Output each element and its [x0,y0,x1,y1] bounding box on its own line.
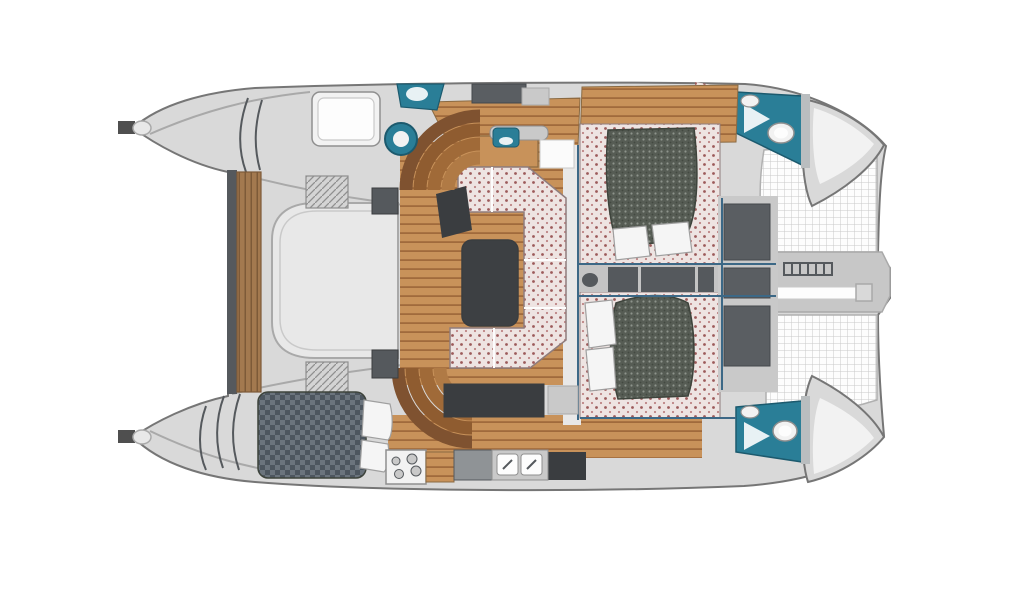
galley-counter-aft [444,384,544,417]
bed-aft-port-pillow-1 [362,400,392,440]
corridor-step-3 [698,267,714,292]
galley-counter-wood [426,452,454,482]
bed-starboard-pillow-2 [652,222,692,256]
berth-aft-starboard-inner [318,98,374,140]
sink-port [741,406,759,418]
bed-port-mattress [611,296,694,400]
galley-counter-fwd [548,452,586,480]
foredeck-hatch-1 [724,204,770,260]
cockpit-lounge [272,203,398,358]
cabin-forward-starboard [580,124,720,264]
corridor-step-2 [641,267,695,292]
corner-seat [436,186,472,238]
foredeck-hatch-2 [724,268,770,298]
bowsprit-fitting [856,284,872,301]
winch-drum [393,131,409,147]
transom-bench [237,172,261,392]
nav-light-panel [540,140,574,168]
roof-hatch-dark [472,84,526,103]
bow-platform [765,252,890,312]
roof-hatch-light [522,88,549,105]
galley-fridge [548,386,578,414]
door-post-top [372,188,398,214]
foredeck-hatches [718,196,778,392]
head-port-wall [801,396,810,464]
stove [386,450,426,484]
cabin-corridor [578,264,722,292]
deck-hatch-teal-glass [406,87,428,101]
bed-aft-port-mattress [258,392,366,478]
dinette-table [462,240,518,326]
bowsprit-stripe [772,287,858,299]
small-teal-hatch-glass [499,137,513,145]
cockpit-seat-hatch-bottom [306,362,348,394]
door-post-bottom [372,350,398,378]
toilet-port-bowl [779,426,792,437]
toilet-starboard-bowl [774,128,788,139]
foredeck-hatch-3 [724,306,770,366]
cockpit-seat-hatch-top [306,176,348,208]
bow-platform-ladder [784,262,832,276]
stove-burner-1 [392,457,400,465]
stern-tip-bottom [133,430,151,444]
transom-edge [227,170,237,394]
bed-aft-port-pillow-2 [360,440,389,472]
galley-block [454,450,492,480]
corridor-fitting [582,273,598,287]
head-starboard-wall [801,94,810,168]
bed-port-pillow-2 [586,347,616,391]
catamaran-floorplan [0,0,1024,600]
corridor-step-1 [608,267,638,292]
stove-burner-2 [395,470,404,479]
floorplan-canvas [0,0,1024,600]
stern-tip-top [133,121,151,135]
head-port [736,396,810,464]
sink-starboard [741,95,759,107]
bed-starboard-pillow-1 [613,226,650,260]
cabin-forward-port [580,292,720,418]
bed-port-pillow-1 [585,300,616,348]
stove-burner-3 [407,454,417,464]
cabin-aft-port [258,392,392,478]
stove-burner-4 [411,466,421,476]
